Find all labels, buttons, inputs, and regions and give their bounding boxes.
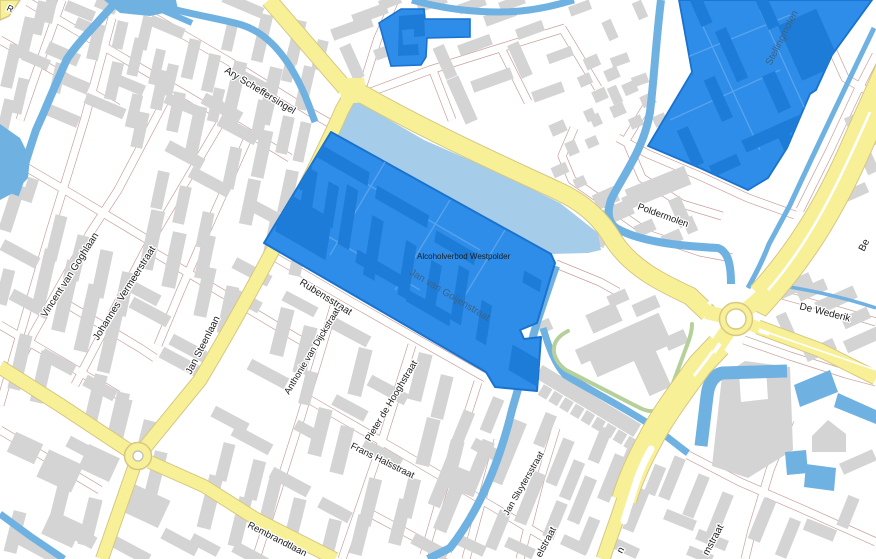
svg-text:Alcoholverbod Westpolder: Alcoholverbod Westpolder — [417, 252, 511, 261]
